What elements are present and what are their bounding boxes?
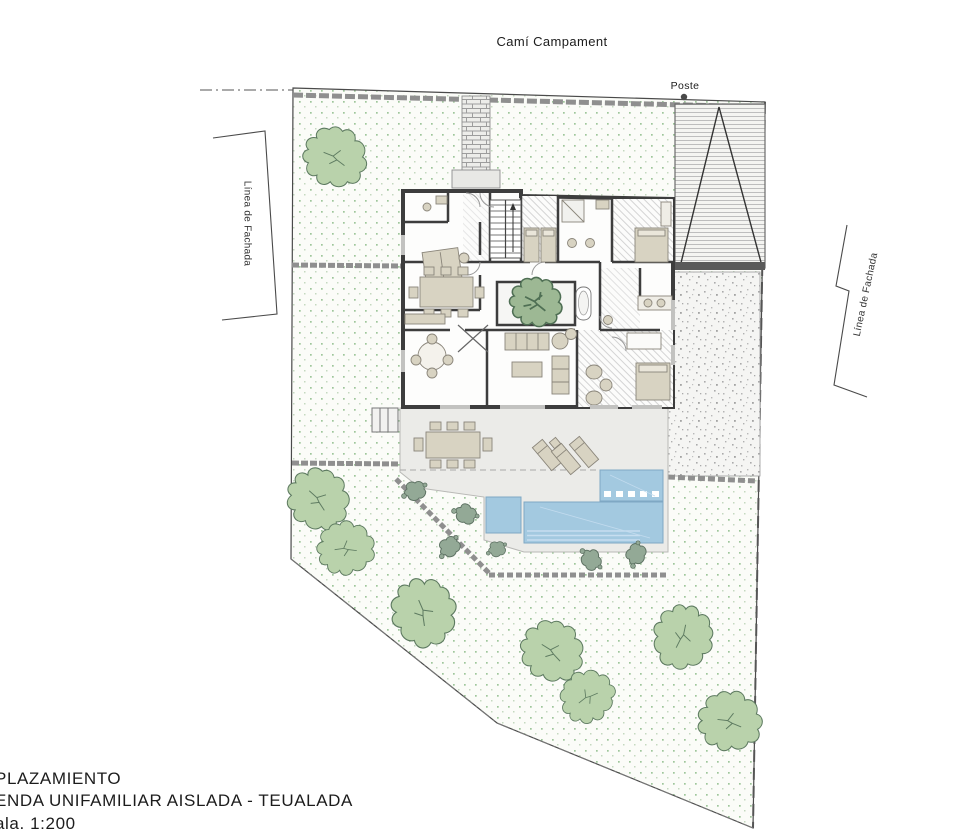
exterior-stair <box>372 408 398 432</box>
title-line-3: ala. 1:200 <box>0 813 353 836</box>
neighbor-south-wall <box>675 262 765 270</box>
title-block: PLAZAMIENTO ENDA UNIFAMILIAR AISLADA - T… <box>0 768 353 836</box>
toilet-icon <box>423 203 431 211</box>
pole-dot <box>681 94 687 100</box>
pole-label: Poste <box>660 80 710 92</box>
bathtub-icon <box>576 287 591 320</box>
staircase <box>490 200 521 258</box>
title-line-1: PLAZAMIENTO <box>0 768 353 791</box>
site-plan-sheet: Camí Campament Poste Línea de Fachada Lí… <box>0 0 958 837</box>
neighbor-plot <box>675 104 765 270</box>
office-chair <box>459 253 469 263</box>
facade-label-left: Línea de Fachada <box>242 164 253 284</box>
courtyard-patio <box>497 277 575 326</box>
sink-icon <box>436 196 447 204</box>
street-label: Camí Campament <box>452 34 652 49</box>
site-plan-drawing <box>0 0 958 837</box>
title-line-2: ENDA UNIFAMILIAR AISLADA - TEUALADA <box>0 790 353 813</box>
house-plan <box>403 191 673 407</box>
entry-landing <box>452 170 500 188</box>
gravel-area <box>668 272 760 481</box>
